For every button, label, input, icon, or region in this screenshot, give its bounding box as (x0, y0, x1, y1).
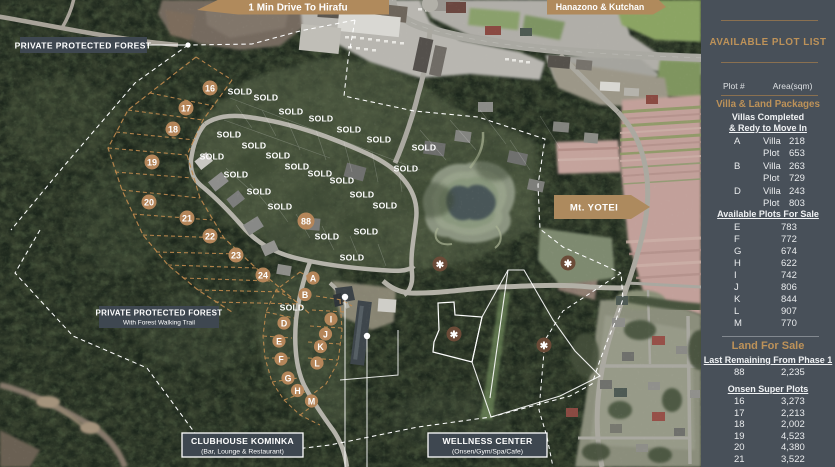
svg-text:SOLD: SOLD (394, 164, 419, 174)
svg-text:E: E (276, 336, 282, 346)
svg-text:17: 17 (181, 104, 191, 114)
svg-text:SOLD: SOLD (367, 135, 392, 145)
svg-text:SOLD: SOLD (242, 141, 267, 151)
svg-text:SOLD: SOLD (200, 152, 225, 162)
svg-text:CLUBHOUSE KOMINKA: CLUBHOUSE KOMINKA (191, 436, 294, 446)
svg-text:SOLD: SOLD (315, 232, 340, 242)
svg-text:SOLD: SOLD (224, 170, 249, 180)
svg-text:(Bar, Lounge & Restaurant): (Bar, Lounge & Restaurant) (201, 449, 284, 456)
svg-text:23: 23 (231, 251, 241, 261)
svg-text:H: H (294, 386, 300, 396)
svg-text:SOLD: SOLD (330, 176, 355, 186)
svg-text:SOLD: SOLD (350, 190, 375, 200)
svg-text:F: F (278, 354, 284, 364)
svg-text:SOLD: SOLD (412, 143, 437, 153)
svg-text:SOLD: SOLD (309, 114, 334, 124)
svg-text:WELLNESS CENTER: WELLNESS CENTER (443, 436, 533, 446)
svg-text:18: 18 (168, 125, 178, 135)
svg-text:SOLD: SOLD (280, 303, 305, 313)
svg-text:21: 21 (182, 214, 192, 224)
svg-text:M: M (308, 396, 315, 406)
svg-text:88: 88 (301, 217, 311, 227)
svg-text:20: 20 (144, 198, 154, 208)
svg-text:SOLD: SOLD (254, 93, 279, 103)
svg-text:SOLD: SOLD (308, 169, 333, 179)
svg-text:K: K (317, 342, 324, 352)
svg-text:B: B (302, 290, 308, 300)
svg-text:(Onsen/Gym/Spa/Cafe): (Onsen/Gym/Spa/Cafe) (452, 449, 523, 456)
svg-text:1 Min Drive To Hirafu: 1 Min Drive To Hirafu (248, 3, 347, 14)
svg-text:16: 16 (205, 84, 215, 94)
svg-text:SOLD: SOLD (217, 130, 242, 140)
svg-text:22: 22 (205, 232, 215, 242)
svg-text:L: L (314, 358, 320, 368)
svg-text:SOLD: SOLD (373, 201, 398, 211)
svg-text:SOLD: SOLD (247, 187, 272, 197)
svg-text:G: G (285, 373, 292, 383)
svg-text:J: J (323, 329, 328, 339)
svg-text:19: 19 (147, 158, 157, 168)
svg-text:✱: ✱ (436, 260, 445, 271)
svg-text:PRIVATE PROTECTED FOREST: PRIVATE PROTECTED FOREST (96, 309, 223, 318)
svg-text:Hanazono & Kutchan: Hanazono & Kutchan (556, 2, 644, 12)
svg-text:PRIVATE PROTECTED FOREST: PRIVATE PROTECTED FOREST (15, 41, 152, 51)
svg-text:SOLD: SOLD (228, 87, 253, 97)
svg-text:24: 24 (258, 271, 268, 281)
svg-text:✱: ✱ (564, 259, 573, 270)
svg-text:With Forest Walking Trail: With Forest Walking Trail (123, 320, 196, 327)
svg-text:✱: ✱ (540, 341, 549, 352)
svg-text:SOLD: SOLD (266, 151, 291, 161)
svg-text:Mt. YOTEI: Mt. YOTEI (570, 203, 618, 214)
svg-text:I: I (330, 314, 332, 324)
svg-text:SOLD: SOLD (279, 107, 304, 117)
svg-text:SOLD: SOLD (354, 227, 379, 237)
svg-text:A: A (310, 273, 317, 283)
svg-text:SOLD: SOLD (268, 202, 293, 212)
svg-text:SOLD: SOLD (337, 125, 362, 135)
svg-text:SOLD: SOLD (340, 253, 365, 263)
svg-text:✱: ✱ (450, 330, 459, 341)
svg-text:D: D (281, 318, 287, 328)
svg-text:SOLD: SOLD (285, 162, 310, 172)
